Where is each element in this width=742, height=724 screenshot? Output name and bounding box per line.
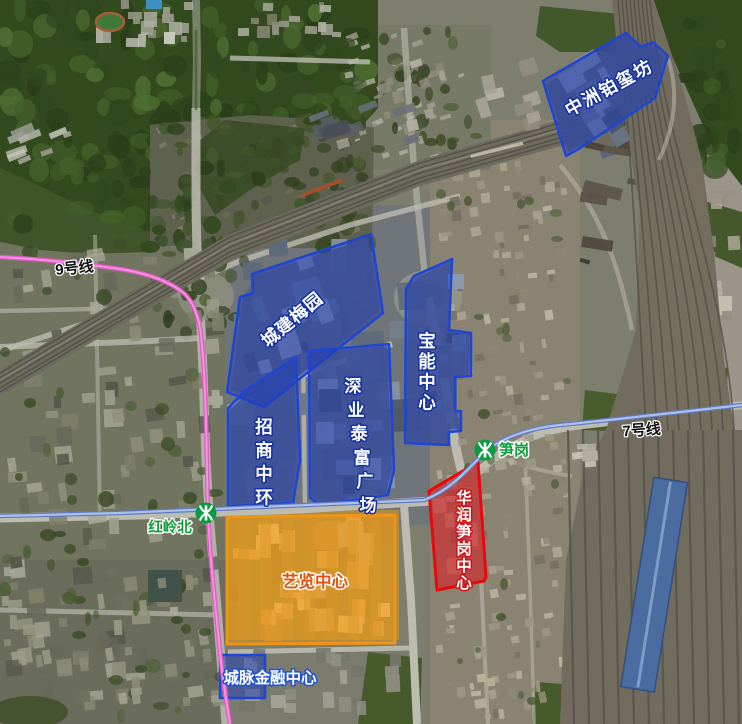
svg-text:场: 场 xyxy=(360,496,377,515)
svg-text:华: 华 xyxy=(456,488,472,507)
svg-text:心: 心 xyxy=(456,574,472,592)
svg-text:7号线: 7号线 xyxy=(622,420,662,441)
svg-text:红岭北: 红岭北 xyxy=(148,518,192,536)
svg-text:岗: 岗 xyxy=(456,540,472,558)
svg-text:艺览中心: 艺览中心 xyxy=(282,571,349,591)
svg-text:商: 商 xyxy=(255,441,273,461)
svg-text:润: 润 xyxy=(456,505,472,524)
svg-text:笋岗: 笋岗 xyxy=(499,441,529,459)
svg-text:中: 中 xyxy=(255,464,273,484)
svg-text:业: 业 xyxy=(348,401,365,420)
svg-text:城脉金融中心: 城脉金融中心 xyxy=(223,668,317,687)
svg-text:富: 富 xyxy=(354,447,371,467)
svg-text:心: 心 xyxy=(418,393,436,413)
svg-text:宝: 宝 xyxy=(418,331,436,351)
svg-text:能: 能 xyxy=(418,352,436,372)
svg-text:中: 中 xyxy=(418,372,436,392)
svg-text:招: 招 xyxy=(255,417,273,437)
svg-text:笋: 笋 xyxy=(456,522,472,541)
svg-text:深: 深 xyxy=(345,376,362,396)
svg-text:环: 环 xyxy=(255,488,273,508)
svg-text:泰: 泰 xyxy=(351,424,369,444)
svg-text:广: 广 xyxy=(357,471,374,491)
svg-text:中: 中 xyxy=(456,556,472,575)
